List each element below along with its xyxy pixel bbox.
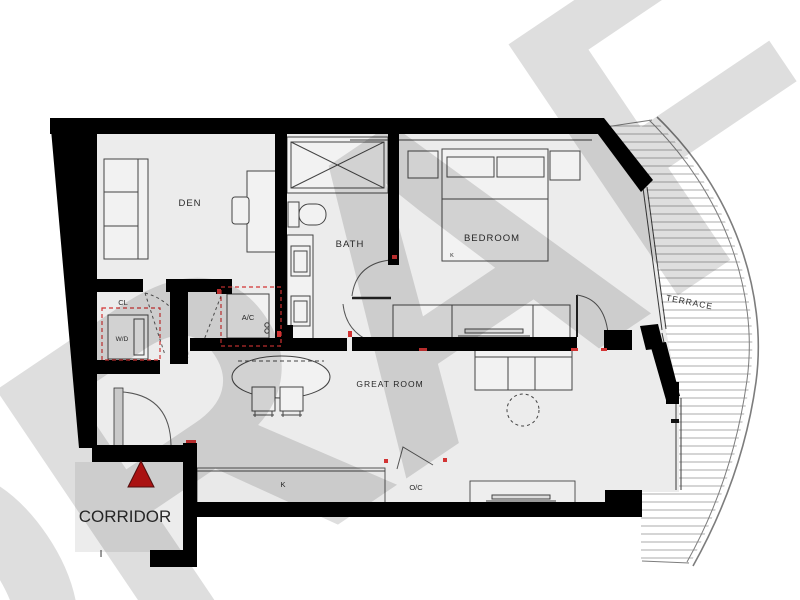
washer-dryer-label: W/D: [116, 336, 129, 343]
bath-vanity: [287, 235, 313, 340]
great-room-sofa: [475, 350, 572, 390]
closet-label: CL: [118, 298, 128, 307]
bedroom-label: BEDROOM: [464, 233, 520, 244]
ac-label: A/C: [242, 313, 255, 322]
column-marker-label: I: [100, 549, 103, 560]
bedroom-dresser: [393, 305, 570, 338]
floor-plan-drawing: TERRACE: [0, 0, 800, 600]
oc-label: O/C: [409, 483, 423, 492]
great-room-label: GREAT ROOM: [356, 379, 423, 389]
toilet: [288, 202, 326, 227]
corridor-label: CORRIDOR: [79, 507, 172, 526]
terrace-label: TERRACE: [665, 293, 714, 312]
floor-plan: TERRACE: [0, 0, 800, 600]
media-console: [470, 481, 575, 505]
den-sofa: [104, 159, 148, 259]
shower: [287, 137, 388, 193]
kitchen-label: K: [280, 480, 285, 489]
den-label: DEN: [178, 198, 201, 209]
kitchen-counter: [197, 468, 385, 505]
bed-size-label: K: [450, 253, 454, 259]
bath-label: BATH: [336, 239, 365, 250]
